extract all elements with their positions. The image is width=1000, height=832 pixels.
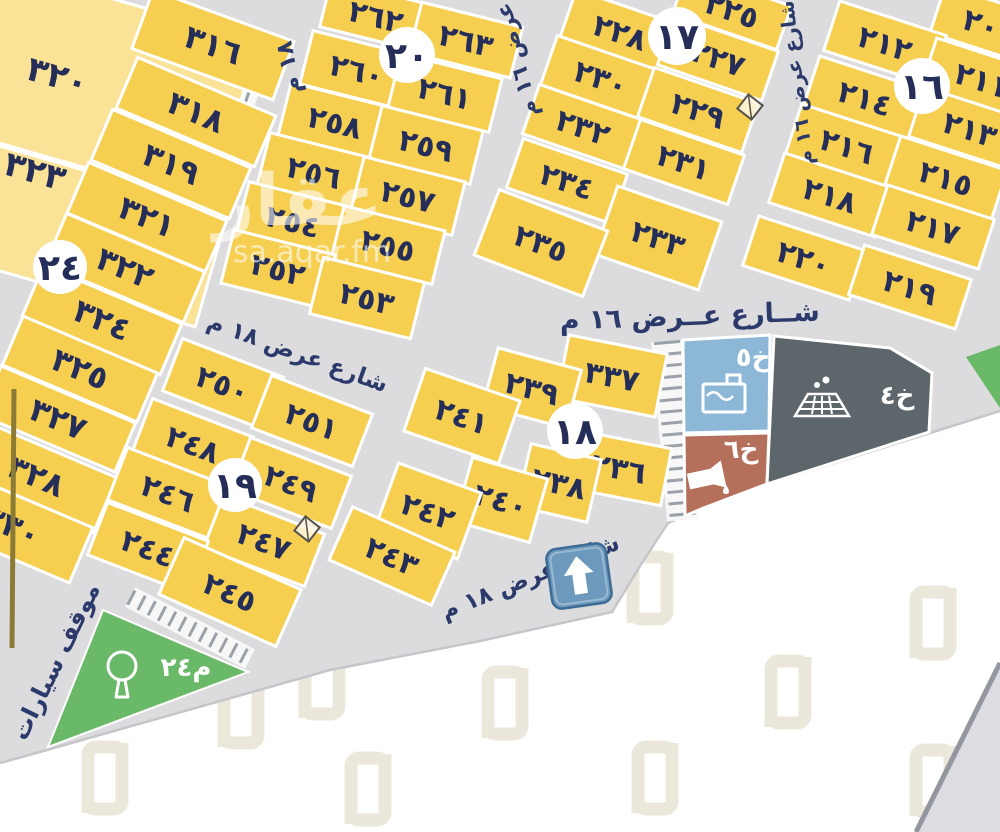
aqar-logo-watermark-icon: [638, 743, 672, 813]
map-label: ١٨: [553, 412, 597, 453]
aqar-watermark: عقارsa.aqar.fm: [210, 158, 391, 270]
map-label: ٢٠: [385, 36, 429, 77]
service-parcel-kh5[interactable]: خ٥: [683, 335, 771, 433]
plan-svg: ٣٢٠٣٢٣٣١٦٣١٨٣١٩٣٢١٣٢٢٣٢٤٣٢٥٣٢٧٣٢٨٣٣٠٢٦٢٢…: [0, 0, 1000, 832]
boundary-wall-line: [12, 389, 14, 648]
aqar-logo-watermark-icon: [351, 754, 385, 824]
map-label: خ٥: [736, 343, 771, 373]
block-circle-20: ٢٠: [379, 27, 435, 83]
aqar-logo-watermark-icon: [488, 668, 522, 738]
block-circle-19: ١٩: [208, 458, 262, 512]
service-parcel-kh4[interactable]: خ٤: [767, 336, 932, 484]
map-label: ٢٤: [38, 248, 82, 289]
map-label: خ٦: [724, 435, 759, 465]
map-label: ١٦: [900, 67, 944, 108]
map-label: ١٧: [655, 17, 699, 58]
map-label: ١٩: [213, 466, 257, 507]
map-label: sa.aqar.fm: [233, 235, 391, 270]
block-circle-17: ١٧: [648, 7, 706, 65]
map-label: عقار: [210, 158, 383, 243]
parcel-map-canvas[interactable]: ٣٢٠٣٢٣٣١٦٣١٨٣١٩٣٢١٣٢٢٣٢٤٣٢٥٣٢٧٣٢٨٣٣٠٢٦٢٢…: [0, 0, 1000, 832]
map-label: خ٤: [880, 381, 915, 411]
block-circle-18: ١٨: [547, 403, 603, 459]
block-circle-16: ١٦: [894, 58, 950, 114]
aqar-logo-watermark-icon: [771, 657, 805, 727]
aqar-logo-watermark-icon: [88, 743, 122, 813]
block-circle-24: ٢٤: [33, 240, 87, 294]
service-parcel-kh6[interactable]: خ٦: [684, 433, 769, 516]
north-arrow-sign-icon: [545, 542, 613, 610]
map-label: م٢٤: [161, 653, 212, 683]
parking-hatch-strip: [667, 341, 683, 520]
aqar-logo-watermark-icon: [916, 588, 950, 658]
